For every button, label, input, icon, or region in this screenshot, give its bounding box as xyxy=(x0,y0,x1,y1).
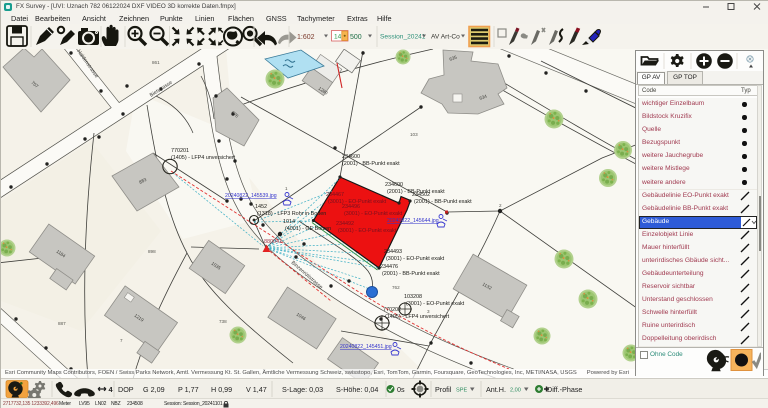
svg-text:AV Art-Co: AV Art-Co xyxy=(431,34,460,41)
svg-text:234600: 234600 xyxy=(385,182,403,188)
svg-text:DOP: DOP xyxy=(118,385,134,394)
svg-text:P 1,77: P 1,77 xyxy=(178,385,199,394)
svg-text:(3001) - EO-Punkt exakt: (3001) - EO-Punkt exakt xyxy=(338,228,397,234)
svg-text:500: 500 xyxy=(350,34,362,41)
svg-text:Profil: Profil xyxy=(435,385,452,394)
svg-text:234467: 234467 xyxy=(326,192,344,198)
svg-text:(1405) - LFP4 unversichert: (1405) - LFP4 unversichert xyxy=(385,314,450,320)
svg-text:(4001) - GE Bolzen: (4001) - GE Bolzen xyxy=(285,226,331,232)
svg-text:898: 898 xyxy=(148,249,156,254)
svg-text:887: 887 xyxy=(58,321,66,326)
svg-text:103208: 103208 xyxy=(404,294,422,300)
svg-text:G 2,09: G 2,09 xyxy=(143,385,165,394)
svg-text:1452: 1452 xyxy=(255,204,267,210)
svg-text:14: 14 xyxy=(334,34,342,41)
svg-text:S-Lage: 0,03: S-Lage: 0,03 xyxy=(282,385,323,394)
svg-text:SPE: SPE xyxy=(456,388,467,394)
svg-text:861: 861 xyxy=(152,60,160,65)
svg-text:(2001) - BB-Punkt exakt: (2001) - BB-Punkt exakt xyxy=(414,199,472,205)
svg-text:234496: 234496 xyxy=(342,204,360,210)
svg-text:S-Höhe: 0,04: S-Höhe: 0,04 xyxy=(336,385,378,394)
svg-text:2,00: 2,00 xyxy=(510,388,521,394)
svg-text:234492: 234492 xyxy=(336,221,354,227)
svg-text:2: 2 xyxy=(499,203,502,208)
svg-text:H 0,99: H 0,99 xyxy=(211,385,232,394)
svg-text:Session_20241: Session_20241 xyxy=(380,34,426,41)
svg-text:234502: 234502 xyxy=(412,192,430,198)
svg-text:103: 103 xyxy=(410,132,418,137)
svg-text:Diff.-Phase: Diff.-Phase xyxy=(547,385,582,394)
svg-text:1: 1 xyxy=(285,186,288,191)
svg-text:20240822_145644.jpg: 20240822_145644.jpg xyxy=(387,218,439,224)
svg-text:762: 762 xyxy=(392,285,400,290)
svg-text:234600: 234600 xyxy=(342,154,360,160)
svg-text:20240822_145539.jpg: 20240822_145539.jpg xyxy=(225,193,277,199)
svg-text:V 1,47: V 1,47 xyxy=(246,385,267,394)
svg-text:(3001) - EO-Punkt exakt: (3001) - EO-Punkt exakt xyxy=(386,256,445,262)
svg-text:0s: 0s xyxy=(397,385,405,394)
svg-text:(1405) - LFP4 unversichert: (1405) - LFP4 unversichert xyxy=(171,155,236,161)
svg-text:234476: 234476 xyxy=(380,264,398,270)
svg-text:738: 738 xyxy=(219,319,227,324)
svg-text:(2001) - BB-Punkt exakt: (2001) - BB-Punkt exakt xyxy=(382,271,440,277)
svg-text:1:602: 1:602 xyxy=(297,34,315,41)
svg-text:7: 7 xyxy=(120,338,123,343)
svg-text:770202: 770202 xyxy=(383,307,401,313)
svg-text:(3001) - EO-Punkt exakt: (3001) - EO-Punkt exakt xyxy=(344,211,403,217)
svg-text:(3001) - EO-Punkt exakt: (3001) - EO-Punkt exakt xyxy=(406,301,465,307)
svg-text:4: 4 xyxy=(109,385,114,394)
svg-text:1014: 1014 xyxy=(283,219,295,225)
svg-text:(2001) - BB-Punkt exakt: (2001) - BB-Punkt exakt xyxy=(342,161,400,167)
svg-text:Ant.H.: Ant.H. xyxy=(486,385,506,394)
svg-text:20240822_145451.jpg: 20240822_145451.jpg xyxy=(340,344,392,350)
svg-text:770201: 770201 xyxy=(171,148,189,154)
svg-text:(1318) - LFP3 Rohr in Boden: (1318) - LFP3 Rohr in Boden xyxy=(257,211,326,217)
svg-text:880041: 880041 xyxy=(264,239,282,245)
svg-text:234493: 234493 xyxy=(384,249,402,255)
